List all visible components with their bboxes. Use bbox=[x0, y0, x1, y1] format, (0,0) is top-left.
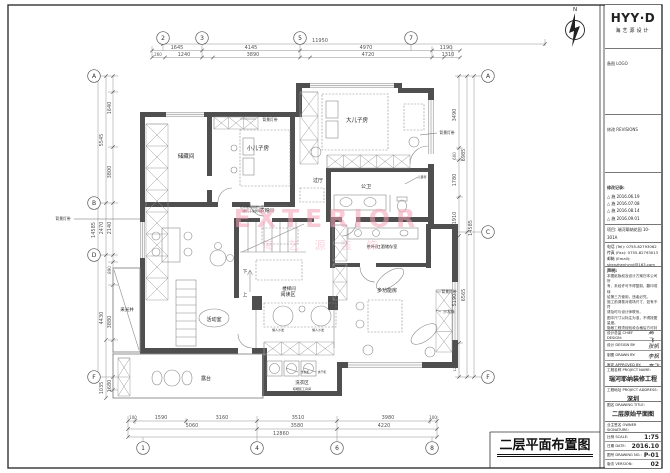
plan-text: 背景灯带 bbox=[439, 130, 454, 135]
plan-text: (做儿子涂鸦墙) bbox=[242, 208, 262, 213]
plan-text: 洗衣机 bbox=[301, 370, 310, 374]
plan-text: 晾晒区工具间 bbox=[293, 386, 311, 391]
revision-log-header: 修改记录: bbox=[607, 185, 625, 190]
plan-text: 12860 bbox=[273, 431, 289, 437]
door-opening bbox=[342, 217, 356, 222]
wall-segment bbox=[207, 112, 212, 207]
grid-bubble-label: F bbox=[92, 374, 96, 381]
signature-label: 设计总监 CHIEF DESIGN: bbox=[607, 331, 648, 340]
plan-text: 1680 bbox=[107, 380, 113, 393]
meta-row: 日期 DATE:2016.10 bbox=[605, 442, 661, 451]
plan-text: 100 bbox=[429, 415, 437, 420]
meta-value: P-01 bbox=[644, 452, 659, 459]
door-opening bbox=[207, 176, 212, 190]
grid-bubble-label: 5 bbox=[298, 35, 302, 42]
plan-text: 1240 bbox=[178, 52, 191, 58]
meta-label: 版次 VERSION: bbox=[607, 462, 633, 467]
contact-info: 电话 (Tel): 0755-82793062传真 (Fax): 0755-82… bbox=[605, 243, 661, 267]
door-opening bbox=[360, 263, 376, 267]
wall-segment bbox=[290, 112, 295, 207]
meta-row: 比例 SCALE:1:75 bbox=[605, 433, 661, 442]
revision-entry: △ 施 2016.07.08 bbox=[607, 200, 659, 207]
wall-segment bbox=[426, 224, 431, 268]
company-logo-text: HYY·D bbox=[607, 11, 659, 25]
plan-text: 储藏间 bbox=[178, 152, 195, 160]
logo-section-label: 备图 LOGO bbox=[607, 61, 628, 66]
plan-text: 4220 bbox=[378, 423, 391, 429]
plan-text: 下 bbox=[243, 269, 248, 275]
signature-label: 制图 DRAWN BY: bbox=[607, 353, 635, 358]
contact-line: 邮箱 (Email): shenzhenhyyd@163.com bbox=[607, 256, 659, 267]
grid-bubble-label: 3 bbox=[200, 35, 204, 42]
company-logo: HYY·D 海艺源设计 bbox=[605, 5, 661, 49]
plan-text: 背景灯带 bbox=[262, 117, 277, 122]
plan-text: 公卫 bbox=[361, 184, 371, 190]
plan-text: 背景灯带 bbox=[55, 216, 70, 221]
field-owner-signature: 业主签名 OWNER SIGNATURE: bbox=[605, 422, 661, 433]
field-project-address: 工程地址 PROJECT ADDRESS:深圳 bbox=[605, 387, 661, 402]
plan-text: 1310 bbox=[442, 52, 455, 58]
revision-entry: △ 施 2016.06.19 bbox=[607, 193, 659, 200]
plan-text: 120 bbox=[453, 364, 457, 372]
plan-text: 600 bbox=[452, 152, 457, 160]
grid-bubble-label: 1 bbox=[141, 445, 145, 452]
plan-text: 100 bbox=[129, 415, 137, 420]
statement-line: 本图纸版权及设计方案归本公司所 bbox=[607, 274, 659, 284]
wall-segment bbox=[296, 83, 302, 117]
plan-text: 1780 bbox=[452, 174, 458, 187]
signature-rows: 设计总监 CHIEF DESIGN:高飞设计 DESIGN BY:张帆制图 DR… bbox=[605, 331, 661, 367]
statement-line: 施工前请核对现场尺寸，如有不符 bbox=[607, 300, 659, 310]
plan-text: 4720 bbox=[362, 52, 375, 58]
plan-text: 活动室 bbox=[206, 316, 221, 323]
plan-text: 楼梯间 bbox=[282, 285, 296, 292]
signature-row: 设计总监 CHIEF DESIGN:高飞 bbox=[605, 331, 661, 341]
plan-text: 露台 bbox=[201, 375, 211, 382]
statement: 声明: 本图纸版权及设计方案归本公司所有，未经许可不得复制、翻印或转给第三方使用… bbox=[605, 267, 661, 331]
revision-entry: △ 施 2016.08.14 bbox=[607, 207, 659, 214]
plan-text: 14585 bbox=[468, 220, 474, 236]
grid-bubble-label: 2 bbox=[161, 35, 165, 42]
grid-bubble-label: F bbox=[486, 374, 490, 381]
plan-text: 6985 bbox=[461, 149, 467, 162]
plan-text: 茶叶/红酒储存室 bbox=[367, 243, 398, 250]
grid-bubble-label: B bbox=[92, 200, 96, 207]
meta-row: 图号 DRAWING NO.:P-01 bbox=[605, 451, 661, 460]
field-label: 图名 DRAWING TITLE: bbox=[607, 403, 659, 408]
meta-value: 02 bbox=[651, 461, 659, 468]
grid-bubble-label: 4 bbox=[255, 445, 259, 452]
plan-text: 1645 bbox=[171, 45, 184, 51]
grid-bubble-label: 7 bbox=[409, 35, 413, 42]
plan-text: 1190 bbox=[440, 45, 453, 51]
meta-row: 版次 VERSION:02 bbox=[605, 460, 661, 468]
plan-text: 4145 bbox=[245, 45, 258, 51]
plan-text: 多功能房 bbox=[377, 287, 397, 294]
plan-text: 洗衣区 bbox=[295, 379, 309, 386]
contact-line: 传真 (Fax): 0755-82793013 bbox=[607, 250, 659, 256]
meta-value: 2016.10 bbox=[632, 443, 659, 450]
wall-segment bbox=[140, 112, 302, 117]
plan-text: 儿童秤 bbox=[417, 174, 426, 179]
logo-section: 备图 LOGO bbox=[605, 49, 661, 115]
meta-label: 日期 DATE: bbox=[607, 444, 626, 449]
plan-text: 5545 bbox=[99, 134, 105, 147]
plan-text: 3980 bbox=[382, 415, 395, 421]
plan-text: 3510 bbox=[292, 415, 305, 421]
plan-text: 14585 bbox=[91, 222, 97, 238]
revision-log: 修改记录: △ 施 2016.06.19△ 施 2016.07.08△ 施 20… bbox=[605, 173, 661, 225]
door-opening bbox=[218, 202, 232, 207]
plan-text: 懒人沙发 bbox=[272, 327, 284, 332]
field-label: 工程名称 PROJECT NAME: bbox=[607, 368, 659, 373]
wall-segment bbox=[234, 218, 314, 222]
meta-table: 比例 SCALE:1:75日期 DATE:2016.10图号 DRAWING N… bbox=[605, 433, 661, 468]
plan-text: 260 bbox=[154, 52, 162, 57]
field-value: 二层原始平面图 bbox=[607, 409, 659, 418]
statement-line: 图中尺寸以标注为准，不得按图量度。 bbox=[607, 316, 659, 326]
door-opening bbox=[238, 348, 252, 354]
grid-bubble-label: 8 bbox=[430, 445, 434, 452]
plan-text: 沙发床 bbox=[443, 309, 455, 314]
wall-segment bbox=[234, 218, 239, 298]
door-opening bbox=[260, 218, 272, 222]
plan-text: 5190 bbox=[452, 294, 458, 307]
grid-bubble-label: C bbox=[486, 229, 490, 236]
plan-text: 上 bbox=[243, 291, 248, 298]
meta-value: 1:75 bbox=[644, 434, 659, 441]
revisions-section: 修改 REVISIONS bbox=[605, 115, 661, 173]
plan-text: 懒人沙发 bbox=[312, 327, 324, 332]
plan-text: 2470 bbox=[99, 222, 105, 235]
project-line: 项目: 瑞河耶纳花园 10-301A bbox=[607, 226, 659, 241]
plan-text: 大儿子房 bbox=[346, 116, 369, 124]
plan-text: 1035 bbox=[99, 382, 105, 395]
field-project-name: 工程名称 PROJECT NAME:瑞河耶纳装修工程 bbox=[605, 367, 661, 387]
plan-text: 背景灯带 bbox=[441, 289, 456, 294]
plan-text: 4430 bbox=[99, 312, 105, 325]
wall-segment bbox=[262, 391, 342, 396]
wall-segment bbox=[326, 168, 428, 172]
plan-text: 890 bbox=[107, 266, 112, 274]
revision-list: △ 施 2016.06.19△ 施 2016.07.08△ 施 2016.08.… bbox=[607, 193, 659, 222]
field-label: 业主签名 OWNER SIGNATURE: bbox=[607, 423, 659, 432]
wall-segment bbox=[140, 202, 292, 207]
project-info: 项目: 瑞河耶纳花园 10-301A地址: 深圳市南山区 bbox=[605, 225, 661, 243]
plan-text: 3800 bbox=[107, 166, 113, 179]
wall-segment bbox=[326, 168, 331, 222]
plan-text: 3880 bbox=[107, 316, 113, 329]
plan-text: 阅读区 bbox=[280, 291, 295, 298]
signature-label: 设计 DESIGN BY: bbox=[607, 343, 636, 348]
company-logo-subtext: 海艺源设计 bbox=[607, 27, 659, 34]
plan-text: 1590 bbox=[155, 415, 168, 421]
plan-text: 3580 bbox=[291, 423, 304, 429]
plan-text: 3890 bbox=[247, 52, 260, 58]
north-label: N bbox=[573, 7, 577, 13]
plan-text: 1640 bbox=[107, 102, 113, 115]
revision-entry: △ 施 2016.09.01 bbox=[607, 215, 659, 222]
field-value: 瑞河耶纳装修工程 bbox=[607, 374, 659, 383]
contact-line: 电话 (Tel): 0755-82793062 bbox=[607, 244, 659, 250]
meta-label: 图号 DRAWING NO.: bbox=[607, 453, 642, 458]
drawing-caption-text: 二层平面布置图 bbox=[497, 438, 592, 457]
plan-text: 过厅 bbox=[313, 177, 323, 184]
meta-label: 比例 SCALE: bbox=[607, 435, 628, 440]
grid-bubble-label: D bbox=[92, 252, 97, 259]
drawing-sheet: N 23571468ABDFACF 1195016454145497011902… bbox=[0, 0, 670, 473]
plan-text: 2140 bbox=[107, 222, 113, 235]
plan-text: 烘干机 bbox=[318, 370, 327, 374]
plan-text: 11950 bbox=[312, 38, 328, 44]
signature-row: 设计 DESIGN BY:张帆 bbox=[605, 341, 661, 351]
plan-text: 采光井 bbox=[120, 306, 134, 313]
wall-segment bbox=[252, 296, 262, 310]
floor-plan-svg: N 23571468ABDFACF 1195016454145497011902… bbox=[0, 0, 670, 473]
drawing-caption: 二层平面布置图 bbox=[492, 434, 598, 456]
statement-line: 有，未经许可不得复制、翻印或转 bbox=[607, 284, 659, 294]
grid-bubble-label: 6 bbox=[335, 445, 339, 452]
wall-segment bbox=[326, 217, 428, 222]
signature-value: 张帆 bbox=[648, 342, 659, 350]
statement-lines: 本图纸版权及设计方案归本公司所有，未经许可不得复制、翻印或转给第三方使用，违者必… bbox=[607, 274, 659, 331]
plan-text: 3490 bbox=[452, 109, 458, 122]
revisions-section-label: 修改 REVISIONS bbox=[607, 127, 638, 132]
plan-text: 4970 bbox=[360, 45, 373, 51]
signature-value: 李枫 bbox=[648, 352, 659, 360]
signature-row: 制图 DRAWN BY:李枫 bbox=[605, 351, 661, 361]
plan-text: 小儿子房 bbox=[247, 144, 270, 152]
field-label: 工程地址 PROJECT ADDRESS: bbox=[607, 388, 659, 393]
plan-text: 1910 bbox=[452, 212, 458, 225]
plan-text: 6565 bbox=[461, 289, 467, 302]
plan-text: 5060 bbox=[186, 423, 199, 429]
field-drawing-title: 图名 DRAWING TITLE:二层原始平面图 bbox=[605, 402, 661, 422]
title-block: HYY·D 海艺源设计 备图 LOGO 修改 REVISIONS 修改记录: △… bbox=[605, 5, 661, 468]
field-value: 深圳 bbox=[607, 394, 659, 402]
plan-text: 3160 bbox=[216, 415, 229, 421]
wall-segment bbox=[337, 362, 342, 396]
